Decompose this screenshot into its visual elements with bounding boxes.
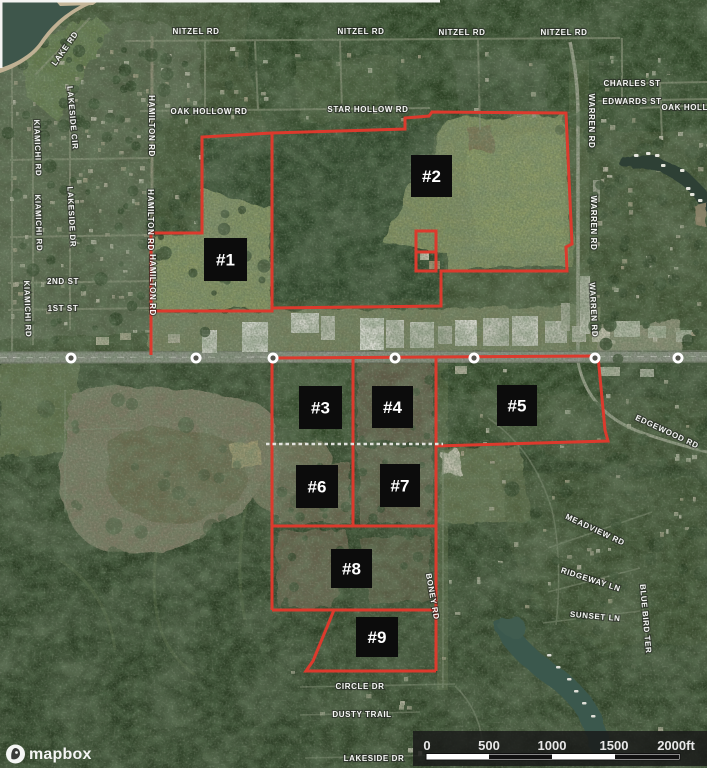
svg-text:mapbox: mapbox (29, 746, 92, 763)
svg-text:2000ft: 2000ft (657, 738, 695, 753)
svg-text:NITZEL RD: NITZEL RD (438, 28, 485, 37)
svg-text:HAMILTON RD: HAMILTON RD (148, 254, 157, 316)
svg-text:NITZEL RD: NITZEL RD (337, 27, 384, 36)
svg-text:#7: #7 (391, 477, 410, 496)
svg-text:#5: #5 (508, 397, 527, 416)
svg-text:OAK HOLLOW RD: OAK HOLLOW RD (170, 107, 247, 116)
svg-text:CHARLES ST: CHARLES ST (603, 79, 660, 88)
svg-text:#2: #2 (422, 167, 441, 186)
svg-text:2ND ST: 2ND ST (47, 277, 79, 286)
svg-text:CIRCLE DR: CIRCLE DR (336, 682, 385, 691)
svg-text:NITZEL RD: NITZEL RD (172, 27, 219, 36)
svg-text:#3: #3 (311, 399, 330, 418)
svg-text:HAMILTON RD: HAMILTON RD (147, 95, 156, 157)
svg-text:LAKESIDE DR: LAKESIDE DR (344, 754, 405, 763)
svg-text:#1: #1 (216, 251, 235, 270)
svg-text:HAMILTON RD: HAMILTON RD (146, 189, 155, 251)
svg-text:1500: 1500 (600, 738, 629, 753)
svg-text:DUSTY TRAIL: DUSTY TRAIL (332, 710, 391, 719)
svg-text:1ST ST: 1ST ST (48, 304, 79, 313)
svg-text:#9: #9 (368, 628, 387, 647)
svg-text:NITZEL RD: NITZEL RD (540, 28, 587, 37)
svg-text:1000: 1000 (538, 738, 567, 753)
svg-text:#4: #4 (383, 398, 402, 417)
svg-text:STAR HOLLOW RD: STAR HOLLOW RD (327, 105, 408, 114)
svg-text:OAK HOLLOW RD: OAK HOLLOW RD (661, 103, 707, 112)
svg-text:500: 500 (478, 738, 500, 753)
svg-text:#8: #8 (342, 560, 361, 579)
svg-text:WARREN RD: WARREN RD (587, 94, 596, 149)
svg-text:#6: #6 (308, 478, 327, 497)
svg-text:EDWARDS ST: EDWARDS ST (602, 97, 661, 106)
svg-text:0: 0 (423, 738, 430, 753)
svg-text:WARREN RD: WARREN RD (589, 196, 598, 251)
